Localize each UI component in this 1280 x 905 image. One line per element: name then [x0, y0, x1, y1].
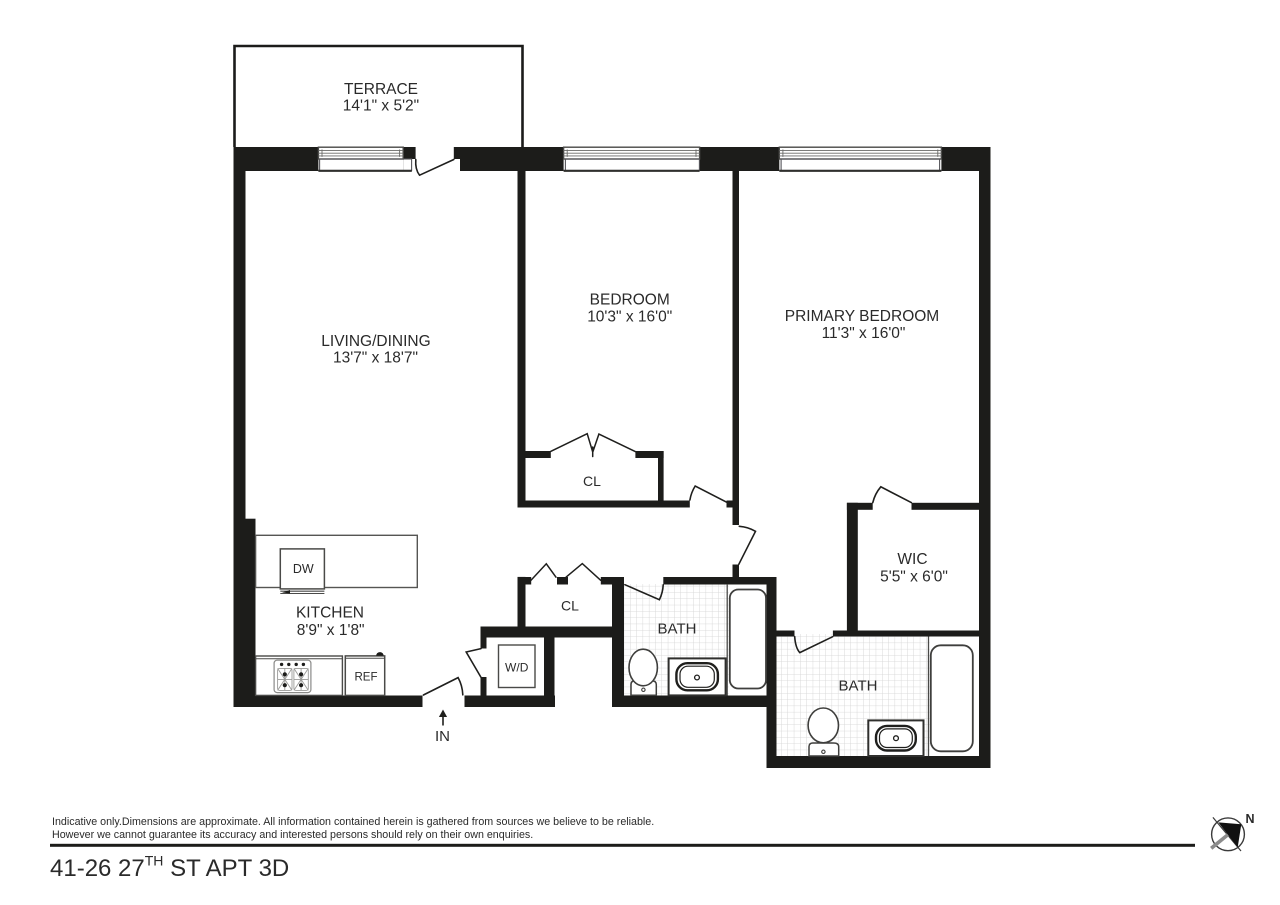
- svg-text:LIVING/DINING: LIVING/DINING: [321, 333, 430, 350]
- svg-text:5'5" x 6'0": 5'5" x 6'0": [880, 569, 948, 586]
- svg-text:10'3" x 16'0": 10'3" x 16'0": [587, 308, 672, 325]
- svg-text:KITCHEN: KITCHEN: [296, 605, 364, 622]
- svg-text:BATH: BATH: [839, 678, 878, 695]
- svg-text:8'9" x 1'8": 8'9" x 1'8": [297, 622, 365, 639]
- svg-text:TERRACE: TERRACE: [344, 81, 418, 98]
- svg-text:DW: DW: [293, 562, 314, 576]
- svg-text:11'3" x 16'0": 11'3" x 16'0": [822, 325, 906, 342]
- svg-text:WIC: WIC: [897, 551, 927, 568]
- svg-text:IN: IN: [435, 728, 450, 745]
- svg-text:BEDROOM: BEDROOM: [590, 291, 670, 308]
- svg-text:13'7" x 18'7": 13'7" x 18'7": [333, 350, 418, 367]
- svg-text:W/D: W/D: [505, 661, 529, 675]
- svg-text:CL: CL: [583, 473, 601, 489]
- svg-text:Indicative only.Dimensions are: Indicative only.Dimensions are approxima…: [52, 816, 654, 828]
- svg-text:BATH: BATH: [658, 621, 697, 638]
- svg-text:However we cannot guarantee it: However we cannot guarantee its accuracy…: [52, 829, 533, 841]
- svg-text:N: N: [1246, 812, 1255, 826]
- svg-text:PRIMARY BEDROOM: PRIMARY BEDROOM: [785, 308, 939, 325]
- svg-text:REF: REF: [355, 672, 378, 684]
- svg-text:14'1" x 5'2": 14'1" x 5'2": [343, 98, 419, 115]
- svg-text:41-26 27TH ST APT 3D: 41-26 27TH ST APT 3D: [50, 853, 289, 883]
- svg-text:CL: CL: [561, 598, 579, 614]
